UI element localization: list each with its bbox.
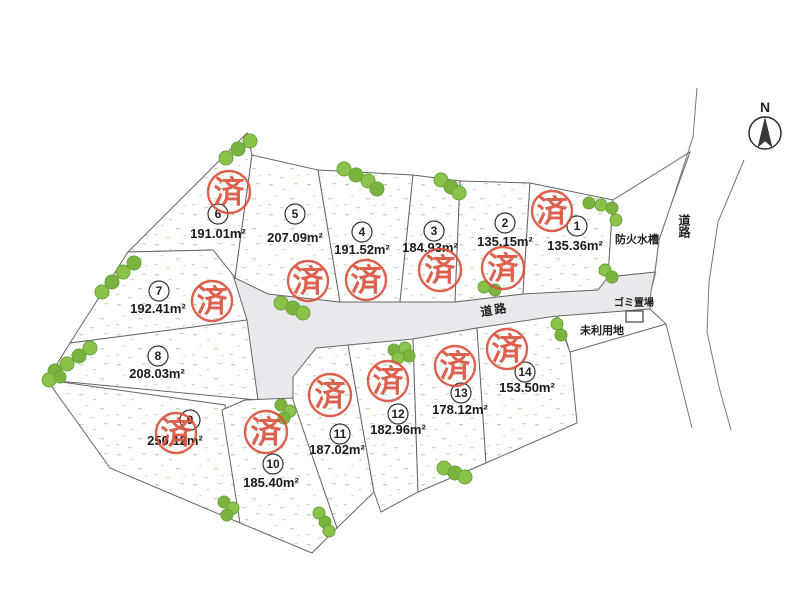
lot-number: 13 bbox=[454, 386, 468, 400]
lot-area: 187.02m² bbox=[309, 442, 365, 457]
sold-stamp-lot-9: 済 bbox=[156, 413, 196, 453]
svg-text:済: 済 bbox=[537, 194, 569, 229]
sold-stamp-lot-13: 済 bbox=[435, 346, 475, 386]
svg-text:済: 済 bbox=[373, 364, 405, 399]
lot-number: 8 bbox=[155, 349, 162, 363]
lot-area: 185.40m² bbox=[243, 475, 299, 490]
sold-stamp-lot-4: 済 bbox=[346, 260, 386, 300]
lot-number: 10 bbox=[266, 457, 280, 471]
sold-stamp-lot-3: 済 bbox=[419, 249, 461, 291]
svg-text:済: 済 bbox=[197, 284, 229, 319]
garbage-place-box bbox=[626, 311, 643, 322]
lot-number: 12 bbox=[391, 407, 405, 421]
lot-number: 7 bbox=[156, 284, 163, 298]
svg-text:済: 済 bbox=[161, 416, 193, 451]
svg-text:済: 済 bbox=[440, 349, 472, 384]
lot-number: 1 bbox=[574, 219, 581, 233]
svg-text:済: 済 bbox=[251, 415, 283, 450]
sold-stamp-lot-10: 済 bbox=[245, 411, 287, 453]
lot-area: 182.96m² bbox=[370, 422, 426, 437]
sold-stamp-lot-11: 済 bbox=[309, 374, 351, 416]
svg-text:済: 済 bbox=[293, 264, 325, 299]
north-label: N bbox=[760, 99, 770, 115]
lot-area: 207.09m² bbox=[267, 230, 323, 245]
svg-text:済: 済 bbox=[315, 378, 347, 413]
unused-land-label: 未利用地 bbox=[579, 323, 624, 337]
lot-number: 4 bbox=[359, 225, 366, 239]
svg-text:済: 済 bbox=[492, 332, 524, 367]
sold-stamp-lot-7: 済 bbox=[192, 281, 232, 321]
land-plot-map: 1135.36m² 2135.15m² 3184.93m² 4191.52m² … bbox=[0, 0, 800, 599]
lot-number: 2 bbox=[502, 216, 509, 230]
sold-stamp-lot-12: 済 bbox=[368, 361, 408, 401]
sold-stamp-lot-5: 済 bbox=[288, 261, 328, 301]
fire-water-tank-label: 防火水槽 bbox=[615, 232, 659, 246]
garbage-place-label: ゴミ置場 bbox=[614, 296, 654, 309]
svg-text:済: 済 bbox=[488, 251, 520, 286]
svg-text:済: 済 bbox=[351, 263, 383, 298]
lot-area: 192.41m² bbox=[130, 301, 186, 316]
sold-stamp-lot-14: 済 bbox=[487, 329, 527, 369]
lot-area: 153.50m² bbox=[499, 380, 555, 395]
lot-number: 14 bbox=[518, 365, 532, 379]
svg-text:済: 済 bbox=[214, 175, 246, 210]
lot-area: 191.01m² bbox=[190, 226, 246, 241]
lot-area: 208.03m² bbox=[129, 366, 185, 381]
lot-area: 191.52m² bbox=[334, 242, 390, 257]
svg-text:済: 済 bbox=[425, 253, 457, 288]
east-road-label: 道路 bbox=[677, 213, 691, 239]
lot-number: 5 bbox=[292, 207, 299, 221]
lot-number: 11 bbox=[334, 427, 347, 441]
sold-stamp-lot-2: 済 bbox=[482, 247, 524, 289]
lot-number: 3 bbox=[431, 224, 438, 238]
sold-stamp-lot-1: 済 bbox=[532, 191, 572, 231]
subdivision-map-canvas: 1135.36m² 2135.15m² 3184.93m² 4191.52m² … bbox=[0, 0, 800, 599]
sold-stamp-lot-6: 済 bbox=[208, 171, 250, 213]
lot-area: 135.36m² bbox=[547, 238, 603, 253]
lot-area: 178.12m² bbox=[432, 402, 488, 417]
